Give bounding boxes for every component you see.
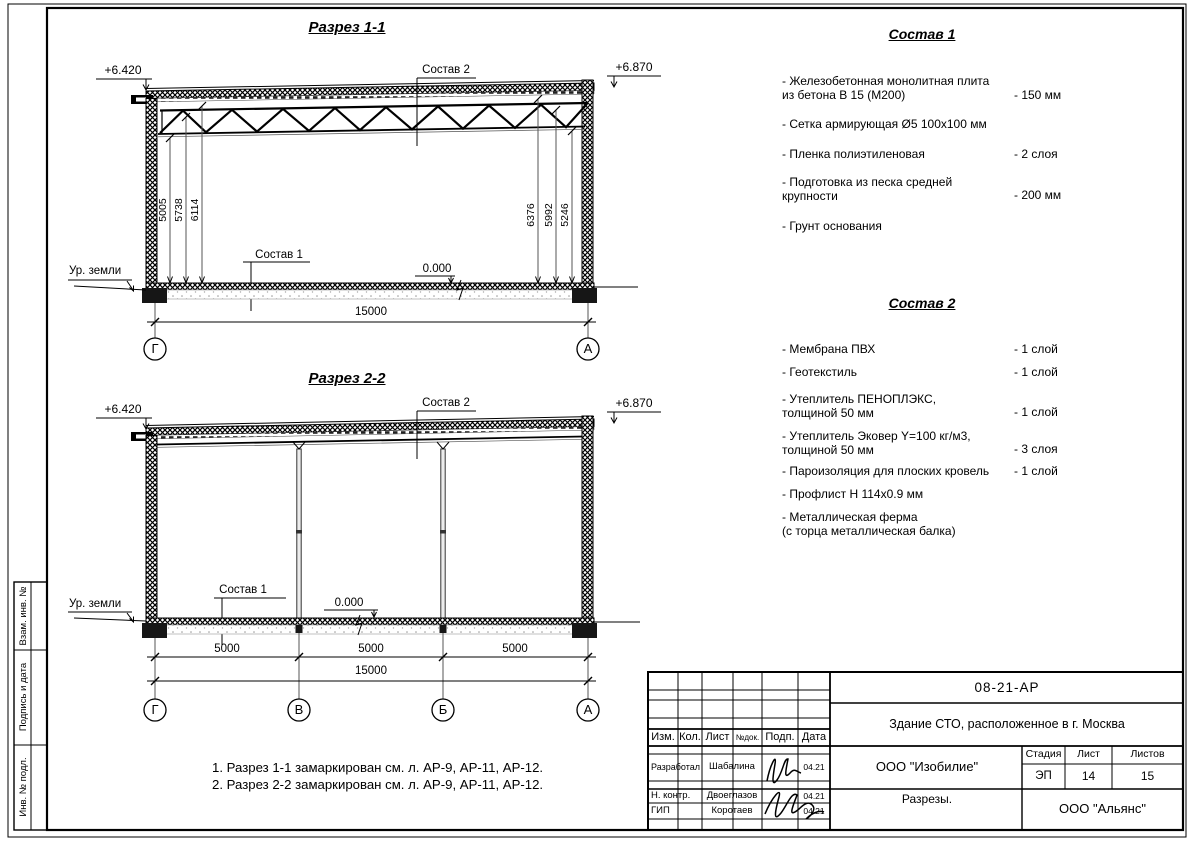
s2-elevation-right: +6.870	[607, 397, 661, 411]
stamp-name-2: Двоеглазов	[702, 791, 762, 802]
s1-roof	[131, 81, 594, 105]
sostav2-item: - Металлическая ферма (с торца металличе…	[782, 511, 1017, 538]
sostav2-item: - Мембрана ПВХ	[782, 343, 1017, 357]
s1-axis-g: Г	[144, 342, 166, 357]
frame-label-inv: Инв. № подл.	[16, 732, 30, 842]
stamp-sheets-value: 15	[1112, 770, 1183, 784]
sostav1-item: - Сетка армирующая Ø5 100х100 мм	[782, 118, 1017, 132]
sostav1-item-value: - 200 мм	[1014, 189, 1099, 203]
stamp-h-list: Лист	[702, 731, 733, 743]
sostav2-item: - Утеплитель ПЕНОПЛЭКС, толщиной 50 мм	[782, 393, 1017, 420]
s2-columns	[293, 442, 449, 618]
s1-sostav1-label: Состав 1	[250, 249, 308, 262]
sostav1-item: - Пленка полиэтиленовая	[782, 148, 1017, 162]
signature-1	[767, 759, 801, 783]
s2-right-wall	[582, 416, 593, 618]
s1-height-dims	[166, 95, 576, 283]
s2-sostav1-label: Состав 1	[214, 584, 272, 597]
stamp-sheet-name: Разрезы.	[832, 793, 1022, 807]
s2-axis-g: Г	[144, 703, 166, 718]
stamp-h-doc: №док.	[733, 733, 762, 742]
s2-axis-b: Б	[432, 703, 454, 718]
sostav1-item-value: - 2 слоя	[1014, 148, 1099, 162]
sostav1-item: - Железобетонная монолитная плита из бет…	[782, 75, 1017, 102]
s1-dim-5005: 5005	[157, 190, 169, 230]
s1-truss	[158, 103, 588, 137]
s2-span-1: 5000	[197, 643, 257, 656]
s2-span-3: 5000	[485, 643, 545, 656]
s1-dim-total: 15000	[341, 306, 401, 319]
s1-dim-6376: 6376	[525, 195, 537, 235]
stamp-sheet-header: Лист	[1065, 749, 1112, 761]
sostav1-heading: Состав 1	[860, 27, 984, 43]
sostav2-item: - Профлист Н 114х0.9 мм	[782, 488, 1017, 502]
stamp-sheet-value: 14	[1065, 770, 1112, 784]
note-1: 1. Разрез 1-1 замаркирован см. л. АР-9, …	[212, 761, 592, 776]
s1-dim-5738: 5738	[173, 190, 185, 230]
stamp-date-3: 04.21	[799, 807, 829, 817]
drawing-sheet: Разрез 1-1 +6.420 +6.870 Состав 2 Состав…	[0, 0, 1191, 842]
s2-span-2: 5000	[341, 643, 401, 656]
stamp-date-2: 04.21	[799, 792, 829, 802]
section-2-title: Разрез 2-2	[287, 371, 407, 388]
sostav1-item: - Грунт основания	[782, 220, 1017, 234]
s1-right-wall	[582, 80, 593, 283]
sostav1-item: - Подготовка из песка средней крупности	[782, 176, 1017, 203]
s1-ground-label: Ур. земли	[69, 265, 121, 278]
s2-axis-v: В	[288, 703, 310, 718]
s1-sostav2-label: Состав 2	[419, 64, 473, 77]
stamp-company: ООО "Изобилие"	[832, 760, 1022, 775]
stamp-doc-number: 08-21-АР	[832, 680, 1182, 695]
s1-elevation-left: +6.420	[96, 64, 150, 78]
stamp-contractor: ООО "Альянс"	[1022, 802, 1183, 817]
stamp-stage-value: ЭП	[1022, 770, 1065, 783]
sostav2-heading: Состав 2	[860, 296, 984, 312]
stamp-role-3: ГИП	[651, 806, 670, 817]
stamp-role-1: Разработал	[651, 762, 700, 772]
sostav2-item-value: - 1 слой	[1014, 366, 1099, 380]
s2-dim-total: 15000	[341, 665, 401, 678]
stamp-sheets-header: Листов	[1112, 749, 1183, 761]
stamp-h-izm: Изм.	[648, 731, 678, 743]
section-1-title: Разрез 1-1	[287, 20, 407, 37]
stamp-h-kol: Кол.	[678, 731, 702, 743]
sostav2-item-value: - 1 слой	[1014, 406, 1099, 420]
s1-elevation-right: +6.870	[607, 61, 661, 75]
s2-elevation-left: +6.420	[96, 403, 150, 417]
s2-zero-mark: 0.000	[325, 597, 373, 610]
sostav2-item-value: - 3 слоя	[1014, 443, 1099, 457]
stamp-date-1: 04.21	[799, 763, 829, 773]
s1-dim-5246: 5246	[559, 195, 571, 235]
stamp-name-1: Шабалина	[702, 762, 762, 773]
sostav2-item-value: - 1 слой	[1014, 465, 1099, 479]
s1-axis-a: А	[577, 342, 599, 357]
s1-zero-mark: 0.000	[415, 263, 459, 276]
stamp-h-data: Дата	[798, 731, 830, 743]
stamp-h-podp: Подп.	[762, 731, 798, 743]
stamp-object-title: Здание СТО, расположенное в г. Москва	[832, 717, 1182, 731]
s1-dim-5992: 5992	[543, 195, 555, 235]
sostav2-item-value: - 1 слой	[1014, 343, 1099, 357]
s2-left-wall	[146, 436, 157, 619]
s2-sostav2-label: Состав 2	[419, 397, 473, 410]
s2-ground-label: Ур. земли	[69, 598, 121, 611]
s1-dim-6114: 6114	[189, 190, 201, 230]
s1-left-wall	[146, 99, 157, 284]
sostav2-item: - Пароизоляция для плоских кровель	[782, 465, 1017, 479]
sostav1-item-value: - 150 мм	[1014, 89, 1099, 103]
sostav2-item: - Утеплитель Эковер Y=100 кг/м3, толщино…	[782, 430, 1017, 457]
sostav2-item: - Геотекстиль	[782, 366, 1017, 380]
stamp-role-2: Н. контр.	[651, 791, 690, 802]
note-2: 2. Разрез 2-2 замаркирован см. л. АР-9, …	[212, 778, 592, 793]
stamp-stage-header: Стадия	[1022, 749, 1065, 761]
s2-roof	[131, 417, 594, 448]
stamp-name-3: Коротаев	[702, 806, 762, 817]
s2-axis-a: А	[577, 703, 599, 718]
